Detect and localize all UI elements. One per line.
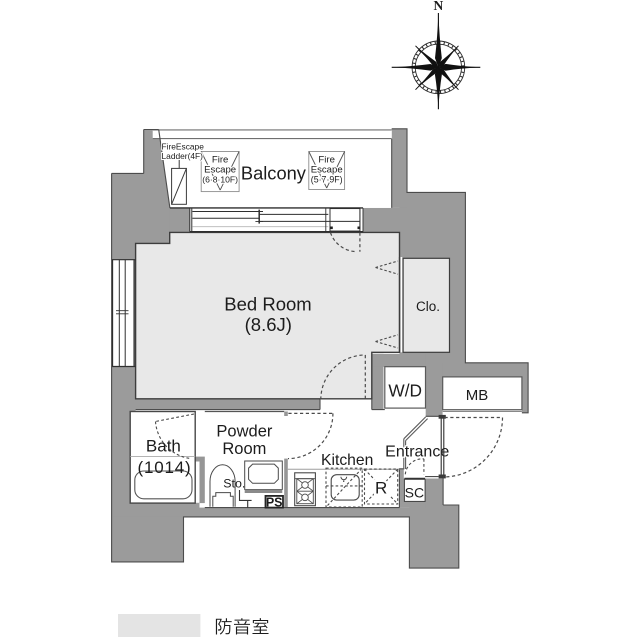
svg-text:R: R — [375, 479, 387, 498]
svg-text:Bath: Bath — [146, 436, 181, 455]
svg-text:Entrance: Entrance — [385, 443, 449, 460]
svg-text:Balcony: Balcony — [241, 163, 307, 184]
svg-text:MB: MB — [466, 387, 489, 404]
svg-text:Kitchen: Kitchen — [321, 452, 373, 469]
svg-text:(1014): (1014) — [138, 458, 192, 477]
svg-text:SC: SC — [405, 484, 424, 500]
svg-text:PS: PS — [266, 495, 283, 509]
svg-text:(5·7·9F): (5·7·9F) — [311, 174, 343, 184]
svg-text:Ladder(4F): Ladder(4F) — [162, 151, 204, 161]
svg-text:(6·8·10F): (6·8·10F) — [202, 174, 238, 184]
svg-text:(8.6J): (8.6J) — [245, 314, 292, 335]
svg-text:Sto.: Sto. — [223, 477, 245, 491]
svg-text:Powder: Powder — [216, 423, 272, 441]
svg-text:Bed Room: Bed Room — [224, 294, 311, 315]
svg-text:Clo.: Clo. — [416, 299, 440, 314]
svg-text:N: N — [434, 0, 444, 13]
svg-text:Room: Room — [222, 440, 266, 458]
svg-text:W/D: W/D — [388, 381, 422, 401]
